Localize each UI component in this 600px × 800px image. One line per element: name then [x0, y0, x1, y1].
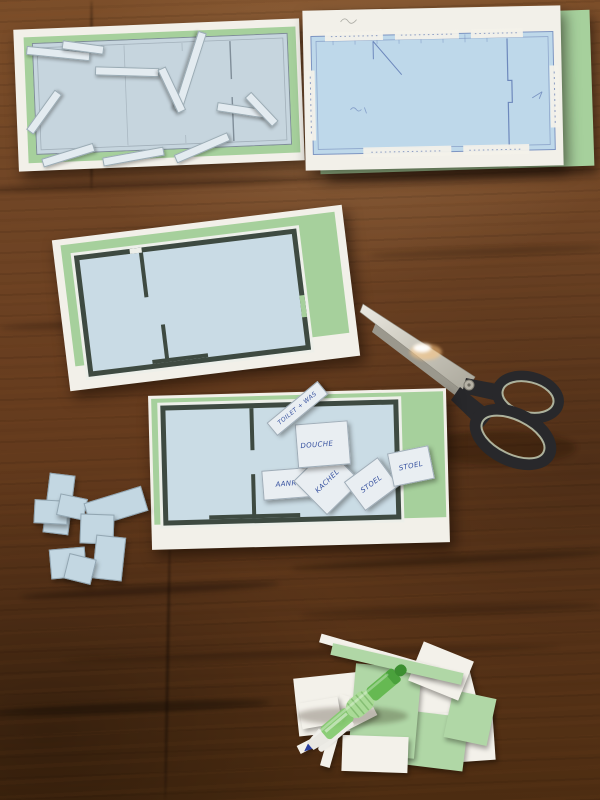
interior-wall — [209, 513, 300, 519]
measurement-strip — [363, 146, 451, 158]
interior-wall — [152, 353, 208, 364]
interior-wall — [161, 324, 170, 362]
interior-wall — [251, 474, 256, 518]
pen — [280, 640, 434, 774]
paper-strip — [95, 66, 159, 77]
interior-wall — [139, 252, 148, 297]
blade-reflection — [413, 344, 431, 353]
measurement-strip — [471, 28, 523, 38]
pencil-scribble — [341, 19, 357, 24]
pen-highlight — [311, 673, 389, 739]
floorplan-sheet-top-left — [13, 18, 304, 171]
paper-scrap-blue — [92, 535, 126, 582]
measurement-strip — [395, 29, 459, 39]
floorplan-sheet-top-right — [302, 5, 563, 170]
room-label-douche: DOUCHE — [295, 420, 351, 468]
floorplan-sheet-bottom: AANRECHT KACHEL STOEL STOEL DOUCHE TOILE… — [148, 388, 450, 550]
floorplan-walls — [74, 228, 311, 376]
hand-drawn-floorplan — [302, 5, 563, 170]
photo-wooden-table-craft-scene: AANRECHT KACHEL STOEL STOEL DOUCHE TOILE… — [0, 0, 600, 800]
pivot-screw-slot — [467, 383, 470, 386]
measurement-strip — [550, 65, 560, 127]
interior-wall — [250, 408, 255, 450]
